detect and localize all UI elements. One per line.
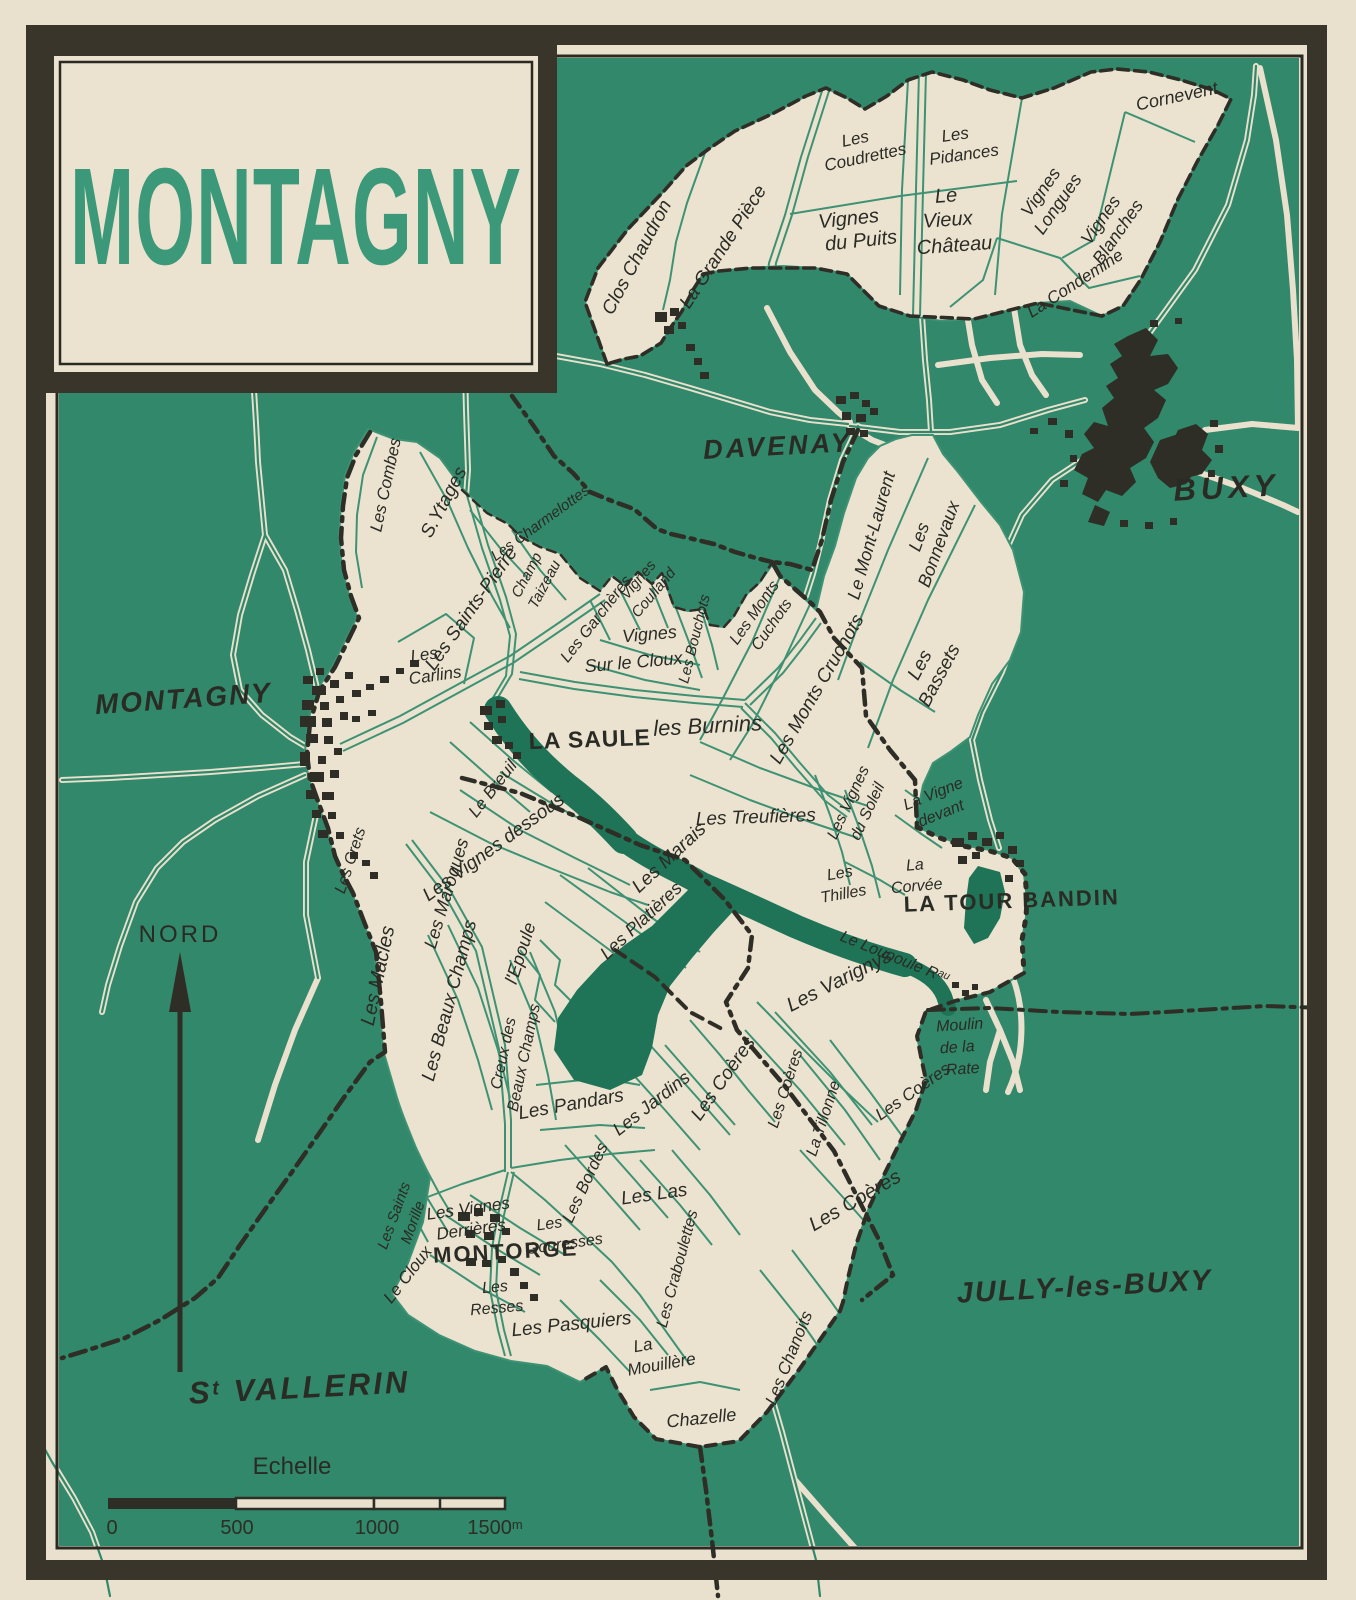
svg-text:1000: 1000: [355, 1517, 400, 1539]
svg-text:Les: Les: [481, 1278, 508, 1297]
svg-text:La: La: [632, 1334, 654, 1356]
svg-text:La: La: [905, 856, 924, 874]
svg-text:de la: de la: [939, 1038, 975, 1057]
svg-text:Vieux: Vieux: [922, 207, 974, 232]
svg-text:Echelle: Echelle: [253, 1453, 332, 1480]
svg-text:Les Treufières: Les Treufières: [695, 805, 816, 830]
svg-text:Les: Les: [940, 123, 970, 146]
svg-text:MONTAGNY: MONTAGNY: [70, 140, 522, 294]
svg-text:Les: Les: [535, 1214, 563, 1234]
svg-text:BUXY: BUXY: [1173, 467, 1281, 508]
svg-text:LA SAULE: LA SAULE: [528, 724, 651, 754]
svg-text:500: 500: [220, 1517, 253, 1539]
svg-text:Moulin: Moulin: [936, 1015, 984, 1035]
svg-text:0: 0: [106, 1517, 117, 1539]
svg-text:Le: Le: [934, 184, 958, 207]
svg-text:Les: Les: [409, 643, 439, 666]
svg-text:NORD: NORD: [139, 921, 222, 948]
